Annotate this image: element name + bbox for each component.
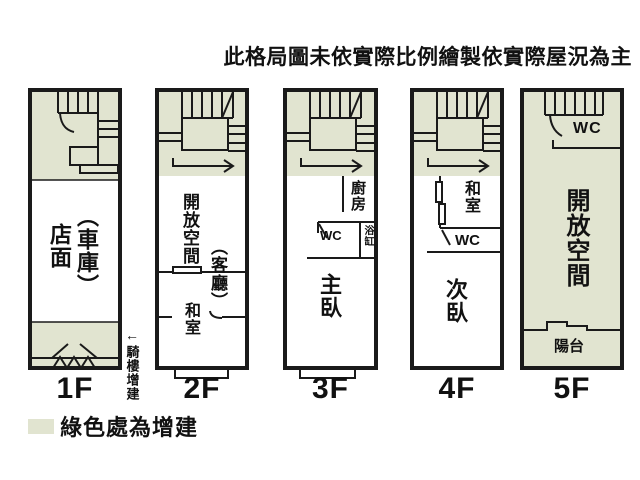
room-label-wc: WC (573, 121, 602, 137)
floor-label-2f: 2F (155, 372, 249, 406)
room-label-open-space: 開放空間 (181, 193, 198, 265)
sliding-door-panel (439, 204, 445, 224)
annotation-arcade-addition: ← 騎樓增建 (124, 328, 140, 406)
room-label-kitchen: 廚房 (350, 180, 365, 212)
interior-walls-2f (157, 267, 247, 318)
floorplan-unit-4f: 和室 WC 次臥 4F (410, 88, 504, 372)
floorplan-page: 此格局圖未依實際比例繪製依實際屋況為主 店面 （車庫） (0, 0, 640, 480)
room-label-master-bedroom: 主臥 (318, 273, 340, 319)
floorplan-unit-2f: 開放空間 （客廳） 和室 2F (155, 88, 249, 372)
floor-label-3f: 3F (283, 372, 378, 406)
floor-label-1f: 1F (28, 372, 122, 406)
door-swing-arc (210, 311, 222, 318)
legend-color-swatch (28, 419, 54, 434)
room-label-balcony: 陽台 (554, 339, 584, 354)
room-label-tatami: 和室 (462, 180, 478, 214)
room-label-second-bedroom: 次臥 (444, 278, 466, 324)
sliding-door-panel (436, 182, 442, 202)
floorplan-unit-3f: 廚房 WC 浴缸 主臥 3F (283, 88, 378, 372)
floorplan-unit-1f: 店面 （車庫） 1F (28, 88, 122, 372)
legend-label: 綠色處為增建 (60, 410, 198, 442)
room-label-living-room: （客廳） (209, 238, 226, 310)
floor-label-5f: 5F (520, 372, 624, 406)
floorplan-graphic-2f (155, 88, 249, 384)
floor-label-4f: 4F (410, 372, 504, 406)
legend: 綠色處為增建 (28, 410, 198, 442)
room-label-bathtub: 浴缸 (362, 225, 372, 247)
left-arrow-icon: ← (124, 328, 140, 342)
room-label-open-space: 開放空間 (563, 188, 587, 288)
page-title: 此格局圖未依實際比例繪製依實際屋況為主 (0, 41, 632, 71)
room-label-tatami: 和室 (182, 302, 198, 336)
door-swing-line (442, 230, 450, 245)
room-label-garage: （車庫） (75, 205, 97, 297)
room-label-storefront: 店面 (48, 223, 70, 269)
room-label-wc: WC (455, 233, 480, 248)
room-label-wc: WC (320, 229, 342, 242)
floorplan-unit-5f: WC 開放空間 陽台 5F (520, 88, 624, 372)
annotation-label: 騎樓增建 (126, 345, 139, 401)
